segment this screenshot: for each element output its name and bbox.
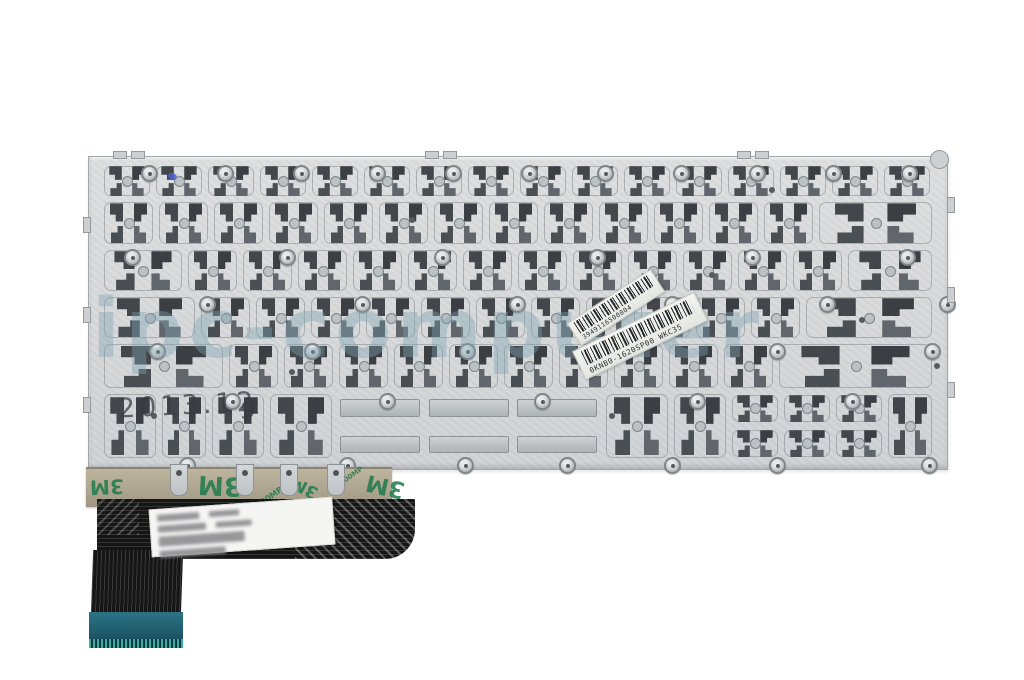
screw-boss: [304, 343, 321, 360]
product-photo: ipc-computer 2013.12 9 3949116500004 0KN…: [0, 0, 1024, 680]
screw-boss: [899, 249, 916, 266]
connector-contacts: [89, 639, 183, 648]
label-blurred-segment: [158, 531, 244, 547]
key-latch-cell: [391, 341, 446, 391]
key-latch-cell: [651, 199, 706, 247]
key-latch-cell: [156, 199, 211, 247]
plate-bottom-tab: [236, 464, 254, 496]
screw-boss: [199, 296, 216, 313]
plate-edge-tab: [425, 151, 439, 159]
plate-corner-tab: [930, 150, 949, 169]
plate-edge-tab: [113, 151, 127, 159]
cable-connector-tip: [89, 612, 183, 648]
key-latch-cell: [295, 247, 350, 294]
spacebar-slot: [429, 436, 509, 453]
key-latch-cell: [621, 163, 673, 199]
screw-boss: [673, 165, 690, 182]
key-latch-cell: [776, 341, 935, 391]
key-latch-cell: [350, 247, 405, 294]
key-latch-cell: [666, 341, 721, 391]
key-latch-cell: [431, 199, 486, 247]
screw-boss: [744, 249, 761, 266]
screw-boss: [457, 457, 474, 474]
plate-edge-tab: [755, 151, 769, 159]
screw-boss: [825, 165, 842, 182]
key-latch-cell: [405, 247, 460, 294]
spacebar-slot: [429, 399, 509, 416]
plate-edge-tab: [83, 217, 91, 233]
arrow-latch-sub: [781, 427, 833, 459]
key-latch-cell: [309, 163, 361, 199]
plate-edge-tab: [83, 307, 91, 323]
screw-boss: [509, 296, 526, 313]
arrow-latch-sub: [729, 427, 781, 459]
key-latch-cell: [777, 163, 829, 199]
key-latch-cell: [185, 247, 240, 294]
key-latch-cell: [267, 391, 335, 461]
screw-boss: [279, 249, 296, 266]
screw-boss: [769, 343, 786, 360]
screw-boss: [589, 249, 606, 266]
key-latch-cell: [418, 294, 473, 341]
key-latch-cell: [376, 199, 431, 247]
rivet-dot: [609, 413, 615, 419]
key-latch-cell: [266, 199, 321, 247]
screw-boss: [749, 165, 766, 182]
screw-boss: [354, 296, 371, 313]
key-latch-cell: [153, 163, 205, 199]
key-latch-cell: [486, 199, 541, 247]
arrow-latch-sub: [729, 392, 781, 424]
screw-boss: [124, 249, 141, 266]
screw-boss: [434, 249, 451, 266]
plate-edge-tab: [737, 151, 751, 159]
screw-boss: [445, 165, 462, 182]
keyboard-plate: [88, 156, 948, 470]
plate-bottom-tab: [280, 464, 298, 496]
key-latch-cell: [361, 163, 413, 199]
key-latch-cell: [226, 341, 281, 391]
key-latch-cell: [790, 247, 845, 294]
key-latch-cell: [721, 341, 776, 391]
screw-boss: [664, 457, 681, 474]
arrow-latch-sub: [833, 427, 885, 459]
key-latch-cell: [363, 294, 418, 341]
screw-boss: [293, 165, 310, 182]
key-latch-cell: [321, 199, 376, 247]
spacebar-latch-area: [335, 391, 603, 461]
plate-bottom-tab: [170, 464, 188, 496]
plate-edge-tab: [947, 382, 955, 398]
tape-3m-logo: 3M: [90, 474, 125, 499]
plate-edge-tab: [443, 151, 457, 159]
ribbon-cable: [91, 550, 183, 616]
key-latch-cell: [706, 199, 761, 247]
screw-boss: [149, 343, 166, 360]
plate-edge-tab: [83, 397, 91, 413]
key-latch-cell: [101, 199, 156, 247]
rivet-dot: [769, 187, 775, 193]
key-latch-cell: [501, 341, 556, 391]
screw-boss: [379, 393, 396, 410]
screw-boss: [141, 165, 158, 182]
key-latch-cell: [515, 247, 570, 294]
plate-edge-tab: [947, 287, 955, 303]
key-latch-cell: [735, 247, 790, 294]
spacebar-slot: [517, 399, 597, 416]
key-latch-cell: [541, 199, 596, 247]
key-latch-cell: [680, 247, 735, 294]
plate-edge-tab: [947, 197, 955, 213]
rivet-dot: [709, 272, 715, 278]
arrow-key-latch-cell: [781, 391, 833, 461]
arrow-key-latch-cell: [729, 391, 781, 461]
label-blurred-segment: [216, 519, 252, 527]
rivet-dot: [859, 317, 865, 323]
plate-bottom-tab: [327, 464, 345, 496]
screw-boss: [369, 165, 386, 182]
label-blurred-segment: [157, 512, 199, 522]
screw-boss: [597, 165, 614, 182]
key-latch-cell: [748, 294, 803, 341]
screw-boss: [924, 343, 941, 360]
key-latch-cell: [885, 391, 935, 461]
key-latch-cell: [101, 294, 198, 341]
label-blurred-segment: [209, 509, 239, 517]
key-latch-cell: [761, 199, 816, 247]
screw-boss: [559, 457, 576, 474]
screw-boss: [901, 165, 918, 182]
label-blurred-segment: [158, 523, 206, 533]
screw-boss: [921, 457, 938, 474]
screw-boss: [689, 393, 706, 410]
digit-stamp: 9: [239, 395, 258, 426]
key-latch-cell: [816, 199, 935, 247]
key-latch-cell: [603, 391, 671, 461]
key-latch-cell: [253, 294, 308, 341]
key-latch-cell: [596, 199, 651, 247]
screw-boss: [819, 296, 836, 313]
rivet-dot: [409, 217, 415, 223]
key-latch-cell: [460, 247, 515, 294]
key-latch-cell: [845, 247, 935, 294]
screw-boss: [521, 165, 538, 182]
screw-boss: [217, 165, 234, 182]
screw-boss: [769, 457, 786, 474]
tape-3m-logo: 3M: [364, 469, 408, 503]
plate-edge-tab: [131, 151, 145, 159]
rivet-dot: [934, 363, 940, 369]
cable-hatch-texture: [97, 499, 139, 535]
spacebar-slot: [340, 436, 420, 453]
screw-boss: [534, 393, 551, 410]
key-latch-cell: [465, 163, 517, 199]
key-latch-cell: [336, 341, 391, 391]
screw-boss: [844, 393, 861, 410]
screw-boss: [459, 343, 476, 360]
key-latch-cell: [101, 247, 185, 294]
arrow-latch-sub: [781, 392, 833, 424]
key-latch-cell: [569, 163, 621, 199]
key-latch-cell: [211, 199, 266, 247]
spacebar-slot: [517, 436, 597, 453]
rivet-dot: [289, 369, 295, 375]
